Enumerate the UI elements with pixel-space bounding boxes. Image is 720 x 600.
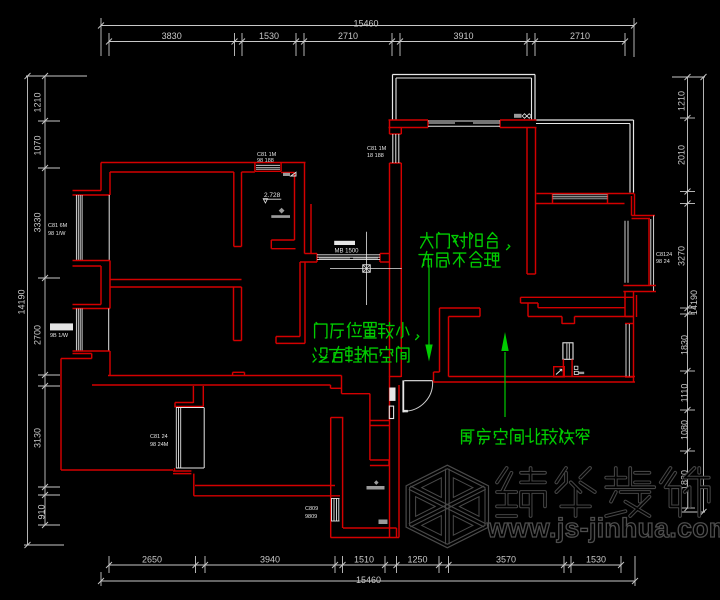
svg-text:2710: 2710 [338,31,358,41]
svg-text:1110: 1110 [680,384,690,403]
svg-text:1210: 1210 [677,91,687,111]
svg-text:1830: 1830 [680,335,690,355]
svg-text:MB 1500: MB 1500 [335,249,360,255]
svg-text:3940: 3940 [260,555,280,565]
svg-text:C809: C809 [305,506,318,512]
svg-text:15460: 15460 [356,575,381,585]
svg-text:2650: 2650 [142,555,162,565]
svg-text:www.js-jinhua.com: www.js-jinhua.com [486,513,720,543]
svg-text:1210: 1210 [33,92,43,112]
svg-text:98 1/W: 98 1/W [48,231,66,237]
svg-text:2010: 2010 [677,145,687,165]
svg-text:3330: 3330 [33,212,43,232]
svg-text:2.728: 2.728 [264,192,281,199]
svg-text:98 24: 98 24 [656,259,670,265]
svg-text:3910: 3910 [453,31,473,41]
svg-text:C81 6M: C81 6M [48,223,68,229]
svg-text:1530: 1530 [259,31,279,41]
svg-text:1250: 1250 [407,555,427,565]
svg-text:3130: 3130 [33,428,43,448]
svg-text:3270: 3270 [677,246,687,266]
svg-text:14190: 14190 [17,289,27,314]
svg-text:1530: 1530 [586,555,606,565]
svg-text:1080: 1080 [680,420,690,440]
svg-text:98 24M: 98 24M [150,442,169,448]
svg-text:3830: 3830 [162,31,182,41]
svg-text:1510: 1510 [354,555,374,565]
svg-text:3570: 3570 [496,555,516,565]
svg-text:910: 910 [37,504,47,519]
svg-text:2710: 2710 [570,31,590,41]
svg-text:1070: 1070 [33,135,43,155]
svg-text:98 188: 98 188 [257,158,274,164]
svg-text:9B 1/W: 9B 1/W [50,333,69,339]
svg-text:C8124: C8124 [656,252,672,258]
svg-text:C81 24: C81 24 [150,434,168,440]
svg-text:18 188: 18 188 [367,153,384,159]
svg-text:9809: 9809 [305,514,317,520]
svg-text:2700: 2700 [33,325,43,345]
svg-text:C81 1M: C81 1M [367,146,387,152]
svg-text:15460: 15460 [353,19,378,29]
